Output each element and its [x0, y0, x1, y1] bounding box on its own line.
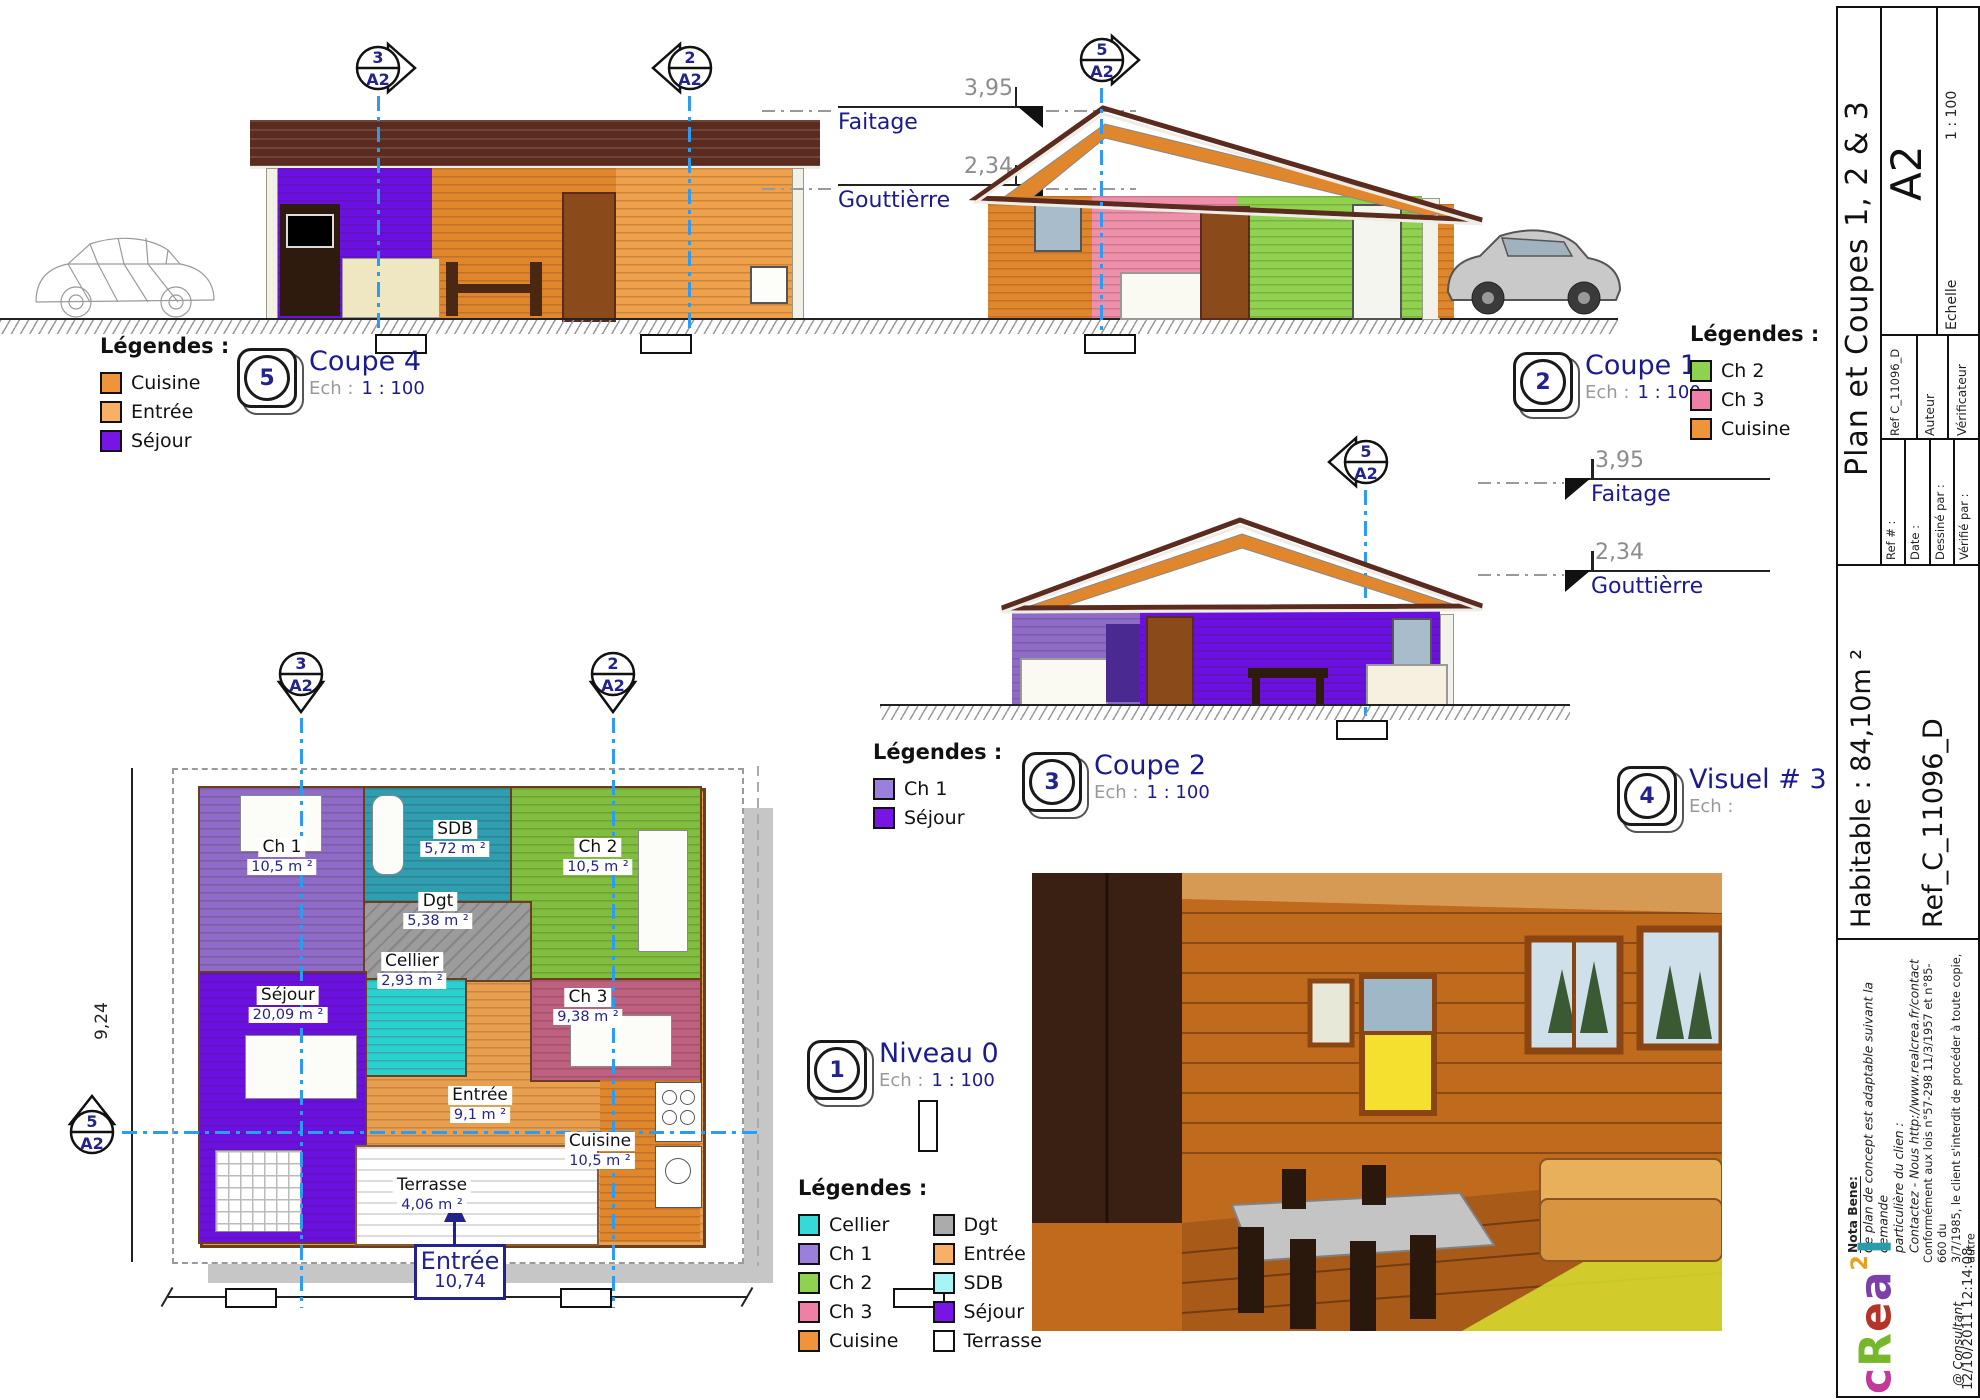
tb-verifie-label: Vérifié par : — [1957, 448, 1971, 560]
dim-arrow-icon — [1565, 570, 1591, 592]
legend-label: Ch 3 — [1721, 389, 1764, 411]
legend-title: Légendes : — [1690, 322, 1819, 346]
ground-hatch-mid — [880, 704, 1570, 720]
car-wireframe — [28, 228, 223, 320]
section-line-5 — [1100, 88, 1103, 332]
scale-value: 1 : 100 — [1146, 782, 1209, 803]
color-swatch — [798, 1243, 820, 1265]
legend-label: Ch 2 — [829, 1272, 872, 1294]
legend-label: Ch 1 — [904, 778, 947, 800]
dim-label: Gouttièrre — [1565, 574, 1770, 599]
legal-text: Conformément aux lois n°57-298 11/3/1957… — [1922, 953, 1980, 1263]
room-label-ch2: Ch 210,5 m ² — [563, 838, 632, 875]
room-terrasse — [355, 1145, 599, 1246]
plan-dim-height: 9,24 — [92, 970, 112, 1040]
panel-text: Coupe 2 Ech :1 : 100 — [1094, 752, 1210, 803]
ech-label: Ech : — [1094, 782, 1138, 803]
panel-title: Niveau 0 — [879, 1040, 999, 1068]
panel-visuel3: 4 Visuel # 3 Ech : — [1617, 766, 1827, 826]
dim-value: 2,34 — [1565, 540, 1770, 568]
panel-text: Coupe 1 Ech :1 : 100 — [1585, 352, 1701, 403]
coupe2-bed — [1020, 658, 1108, 706]
coupe2-door — [1146, 616, 1194, 706]
coupe2-table — [1248, 668, 1328, 678]
tb-divider — [1838, 564, 1978, 566]
legal-line: Conformément aux lois n°57-298 11/3/1957… — [1922, 953, 1950, 1263]
panel-coupe4: 5 Coupe 4 Ech :1 : 100 — [237, 348, 425, 408]
visuel3-badge: 4 — [1617, 766, 1677, 826]
dim-label: Faitage — [1565, 482, 1770, 507]
stove-burner — [680, 1090, 695, 1105]
legend-item: Ch 3 — [798, 1297, 899, 1326]
svg-text:5: 5 — [1096, 40, 1107, 59]
panel-scale: Ech :1 : 100 — [1585, 382, 1701, 403]
coupe4-chair-right — [530, 262, 542, 316]
legend-item: Cellier — [798, 1210, 899, 1239]
interior-render — [1032, 873, 1722, 1331]
nota-bene: Nota Bene: Ce plan de concept est adapta… — [1846, 953, 1923, 1253]
dim-line — [1565, 476, 1770, 480]
coupe4-table — [452, 284, 538, 293]
nota-line: Ce plan de concept est adaptable suivant… — [1861, 953, 1892, 1253]
legend-title: Légendes : — [100, 334, 229, 358]
color-swatch — [933, 1272, 955, 1294]
tb-date-label: Date : — [1908, 448, 1922, 560]
legend-label: Cellier — [829, 1214, 889, 1236]
legend-coupe1: Légendes : Ch 2 Ch 3 Cuisine — [1690, 322, 1819, 443]
section-marker-3-icon: 3 A2 — [352, 40, 418, 96]
coupe4-corner-trim-left — [266, 168, 278, 320]
legend-col1: Cellier Ch 1 Ch 2 Ch 3 Cuisine — [798, 1210, 899, 1355]
color-swatch — [873, 807, 895, 829]
dim-box — [1336, 720, 1388, 740]
nota-title: Nota Bene: — [1846, 953, 1861, 1253]
color-swatch — [798, 1272, 820, 1294]
plan-dim-line-left — [131, 768, 133, 1262]
color-swatch — [100, 430, 122, 452]
color-swatch — [1690, 389, 1712, 411]
room-label-ch1: Ch 110,5 m ² — [247, 838, 316, 875]
svg-text:3: 3 — [372, 48, 383, 67]
svg-text:A2: A2 — [678, 70, 702, 89]
dim-box — [225, 1288, 277, 1308]
coupe4-tv — [286, 214, 334, 248]
coupe2-couch — [1366, 664, 1448, 706]
badge-number: 4 — [1624, 773, 1670, 819]
ref-line — [1478, 574, 1564, 576]
tb-ref-num-label: Ref # : — [1884, 448, 1898, 560]
tb-scale-value: 1 : 100 — [1944, 30, 1960, 140]
dim-faitage-mid: 3,95 Faitage — [1565, 448, 1770, 507]
tb-auteur-label: Auteur — [1922, 344, 1937, 436]
coupe2-window — [1392, 618, 1432, 666]
legend-label: Cuisine — [131, 372, 201, 394]
svg-text:5: 5 — [1360, 442, 1371, 461]
legend-label: Terrasse — [964, 1330, 1043, 1352]
tb-divider — [1880, 334, 1978, 336]
coupe4-sofa — [342, 258, 440, 318]
logo-letter: R — [1851, 1332, 1902, 1367]
dim-line — [1565, 568, 1770, 572]
legend-label: Entrée — [131, 401, 193, 423]
coupe4-door — [562, 192, 616, 322]
scale-value: 1 : 100 — [931, 1070, 994, 1091]
dim-box — [560, 1288, 612, 1308]
section-marker-5-icon: 5 A2 — [1076, 32, 1142, 88]
svg-text:5: 5 — [86, 1112, 97, 1131]
room-label-terrasse: Terrasse4,06 m ² — [393, 1176, 471, 1213]
dim-arrow-icon — [1565, 478, 1591, 500]
svg-text:A2: A2 — [80, 1134, 104, 1153]
legend-item: Ch 1 — [798, 1239, 899, 1268]
tb-divider — [1904, 438, 1906, 564]
legend-item: Ch 2 — [798, 1268, 899, 1297]
legend-item: Entrée — [100, 397, 229, 426]
section-marker-2-icon: 2 A2 — [650, 40, 716, 96]
svg-text:A2: A2 — [601, 676, 625, 695]
plan-section-line-5 — [122, 1131, 758, 1134]
entrance-value: 10,74 — [417, 1273, 503, 1291]
drawing-sheet: 3 A2 2 A2 Légendes : Cuisine Entrée Séjo… — [0, 0, 1980, 1400]
panel-text: Coupe 4 Ech :1 : 100 — [309, 348, 425, 399]
panel-scale: Ech :1 : 100 — [879, 1070, 999, 1091]
legend-item: Dgt — [933, 1210, 1043, 1239]
legend-item: Séjour — [933, 1297, 1043, 1326]
tb-echelle-label: Echelle — [1944, 230, 1960, 330]
svg-text:A2: A2 — [1090, 62, 1114, 81]
legend-coupe2: Légendes : Ch 1 Séjour — [873, 740, 1002, 832]
ech-label: Ech : — [309, 378, 353, 399]
dim-box — [640, 334, 692, 354]
tb-divider — [1936, 8, 1938, 334]
svg-text:A2: A2 — [289, 676, 313, 695]
panel-title: Coupe 1 — [1585, 352, 1701, 380]
panel-scale: Ech : — [1689, 796, 1827, 817]
color-swatch — [873, 778, 895, 800]
ech-label: Ech : — [879, 1070, 923, 1091]
section-line-2 — [688, 96, 691, 332]
svg-text:2: 2 — [684, 48, 695, 67]
legend-label: Séjour — [904, 807, 965, 829]
tb-divider — [1916, 334, 1918, 438]
dim-value: 3,95 — [1565, 448, 1770, 476]
legend-item: Séjour — [873, 803, 1002, 832]
sejour-window-grid — [215, 1150, 302, 1232]
coupe4-badge: 5 — [237, 348, 297, 408]
legend-title: Légendes : — [798, 1176, 1042, 1200]
color-swatch — [933, 1330, 955, 1352]
color-swatch — [798, 1330, 820, 1352]
ech-label: Ech : — [1689, 796, 1733, 817]
color-swatch — [798, 1214, 820, 1236]
legend-label: Séjour — [131, 430, 192, 452]
stove-burner — [662, 1110, 677, 1125]
logo-letter: a — [1851, 1270, 1902, 1301]
tb-divider — [1953, 438, 1955, 564]
plan-right-refline — [757, 766, 759, 1266]
coupe2-table-leg — [1316, 678, 1324, 704]
legend-item: Cuisine — [100, 368, 229, 397]
legend-plan: Légendes : Cellier Ch 1 Ch 2 Ch 3 Cuisin… — [798, 1176, 1042, 1355]
panel-niveau0: 1 Niveau 0 Ech :1 : 100 — [807, 1040, 999, 1100]
plan-marker-5-icon: 5 A2 — [64, 1088, 120, 1158]
legend-title: Légendes : — [873, 740, 1002, 764]
color-swatch — [100, 401, 122, 423]
section-line-3 — [377, 96, 380, 332]
room-label-ch3: Ch 39,38 m ² — [553, 988, 622, 1025]
ref-line — [1478, 482, 1564, 484]
stove-burner — [662, 1090, 677, 1105]
panel-title: Coupe 2 — [1094, 752, 1210, 780]
entrance-label: Entrée — [417, 1249, 503, 1273]
ref-line — [762, 110, 836, 112]
coupe4-corner-trim-right — [792, 168, 804, 320]
panel-text: Niveau 0 Ech :1 : 100 — [879, 1040, 999, 1091]
coupe2-wardrobe — [1106, 624, 1140, 702]
legend-coupe4: Légendes : Cuisine Entrée Séjour — [100, 334, 229, 455]
coupe4-roof — [250, 120, 820, 169]
legend-label: Dgt — [964, 1214, 998, 1236]
logo-letter: e — [1851, 1301, 1902, 1332]
reference-big: Ref_C_11096_D — [1918, 598, 1949, 928]
plan-marker-3-icon: 3 A2 — [273, 648, 329, 718]
tb-ref-small: Ref C_11096_D — [1888, 340, 1902, 436]
legend-item: Terrasse — [933, 1326, 1043, 1355]
entrance-label-box: Entrée 10,74 — [414, 1244, 506, 1300]
coupe1-roof — [968, 98, 1490, 228]
dim-box — [1084, 334, 1136, 354]
title-block: A2 1 : 100 Echelle Ref C_11096_D Auteur … — [1836, 6, 1980, 1398]
section-marker-5b-icon: 5 A2 — [1326, 434, 1392, 490]
sdb-bathtub — [372, 795, 404, 875]
ech-label: Ech : — [1585, 382, 1629, 403]
dim-gouttiere-mid: 2,34 Gouttièrre — [1565, 540, 1770, 599]
svg-text:A2: A2 — [366, 70, 390, 89]
panel-scale: Ech :1 : 100 — [309, 378, 425, 399]
ch2-bed — [638, 830, 688, 952]
sheet-format: A2 — [1882, 68, 1936, 278]
dim-box — [918, 1100, 938, 1152]
tb-divider — [1838, 938, 1978, 940]
legend-label: Entrée — [964, 1243, 1026, 1265]
legend-label: Séjour — [964, 1301, 1025, 1323]
sink-bowl — [665, 1158, 691, 1184]
nota-line: Contactez - Nous http://www.realcrea.fr/… — [1907, 953, 1922, 1253]
room-label-cuisine: Cuisine10,5 m ² — [565, 1132, 635, 1169]
ground-hatch-top — [0, 318, 1618, 334]
stove-burner — [680, 1110, 695, 1125]
badge-number: 1 — [814, 1047, 860, 1093]
panel-title: Coupe 4 — [309, 348, 425, 376]
coupe2-badge: 3 — [1022, 752, 1082, 812]
color-swatch — [933, 1214, 955, 1236]
color-swatch — [933, 1243, 955, 1265]
svg-text:2: 2 — [607, 654, 618, 673]
legend-item: Cuisine — [798, 1326, 899, 1355]
coupe1-bench — [1120, 272, 1202, 320]
legend-item: SDB — [933, 1268, 1043, 1297]
legend-item: Séjour — [100, 426, 229, 455]
niveau0-badge: 1 — [807, 1040, 867, 1100]
logo-sup: 2 — [1848, 1254, 1873, 1270]
svg-text:3: 3 — [295, 654, 306, 673]
room-label-sdb: SDB5,72 m ² — [420, 820, 489, 857]
legend-label: Cuisine — [829, 1330, 899, 1352]
legal-line: 3/7/1985, le client s'interdit de procéd… — [1950, 953, 1978, 1263]
legend-item: Ch 1 — [873, 774, 1002, 803]
legend-item: Cuisine — [1690, 414, 1819, 443]
panel-scale: Ech :1 : 100 — [1094, 782, 1210, 803]
legend-label: Cuisine — [1721, 418, 1791, 440]
color-swatch — [100, 372, 122, 394]
svg-text:A2: A2 — [1354, 464, 1378, 483]
legend-item: Entrée — [933, 1239, 1043, 1268]
tb-divider — [1947, 334, 1949, 438]
panel-text: Visuel # 3 Ech : — [1689, 766, 1827, 817]
coupe1-badge: 2 — [1513, 352, 1573, 412]
legend-label: Ch 3 — [829, 1301, 872, 1323]
tb-dessine-label: Dessiné par : — [1933, 448, 1947, 560]
ref-line — [762, 188, 836, 190]
room-label-cellier: Cellier2,93 m ² — [377, 952, 446, 989]
nota-line: particulière du clien : — [1892, 953, 1907, 1253]
scale-value: 1 : 100 — [361, 378, 424, 399]
logo-letter: l — [1851, 1238, 1902, 1254]
coupe2-roof — [990, 512, 1495, 618]
legend-label: SDB — [964, 1272, 1004, 1294]
color-swatch — [798, 1301, 820, 1323]
room-label-sejour: Séjour20,09 m ² — [249, 986, 328, 1023]
coupe4-window — [750, 266, 788, 304]
badge-number: 3 — [1029, 759, 1075, 805]
badge-number: 5 — [244, 355, 290, 401]
timestamp: 12/10/2011 12:14:08 — [1960, 1240, 1976, 1390]
color-swatch — [1690, 360, 1712, 382]
room-cellier — [365, 980, 465, 1075]
badge-number: 2 — [1520, 359, 1566, 405]
color-swatch — [1690, 418, 1712, 440]
panel-coupe2: 3 Coupe 2 Ech :1 : 100 — [1022, 752, 1210, 812]
legend-columns: Cellier Ch 1 Ch 2 Ch 3 Cuisine Dgt Entré… — [798, 1210, 1042, 1355]
panel-title: Visuel # 3 — [1689, 766, 1827, 794]
habitable-area: Habitable : 84,10m ² — [1846, 583, 1877, 928]
crea-logo: cRea2l — [1848, 1298, 1902, 1394]
coupe2-table-leg — [1252, 678, 1260, 704]
room-label-dgt: Dgt5,38 m ² — [403, 892, 472, 929]
room-label-entree: Entrée9,1 m ² — [448, 1086, 512, 1123]
logo-letter: c — [1851, 1367, 1902, 1394]
sheet-title: Plan et Coupes 1, 2 & 3 — [1840, 16, 1880, 560]
legend-label: Ch 1 — [829, 1243, 872, 1265]
legend-col2: Dgt Entrée SDB Séjour Terrasse — [933, 1210, 1043, 1355]
panel-coupe1: 2 Coupe 1 Ech :1 : 100 — [1513, 352, 1701, 412]
car-side-icon — [1442, 220, 1627, 320]
tb-verificateur-label: Vérificateur — [1954, 344, 1969, 436]
tb-divider — [1929, 438, 1931, 564]
plan-marker-2-icon: 2 A2 — [585, 648, 641, 718]
legend-item: Ch 3 — [1690, 385, 1819, 414]
legend-label: Ch 2 — [1721, 360, 1764, 382]
color-swatch — [933, 1301, 955, 1323]
legend-item: Ch 2 — [1690, 356, 1819, 385]
